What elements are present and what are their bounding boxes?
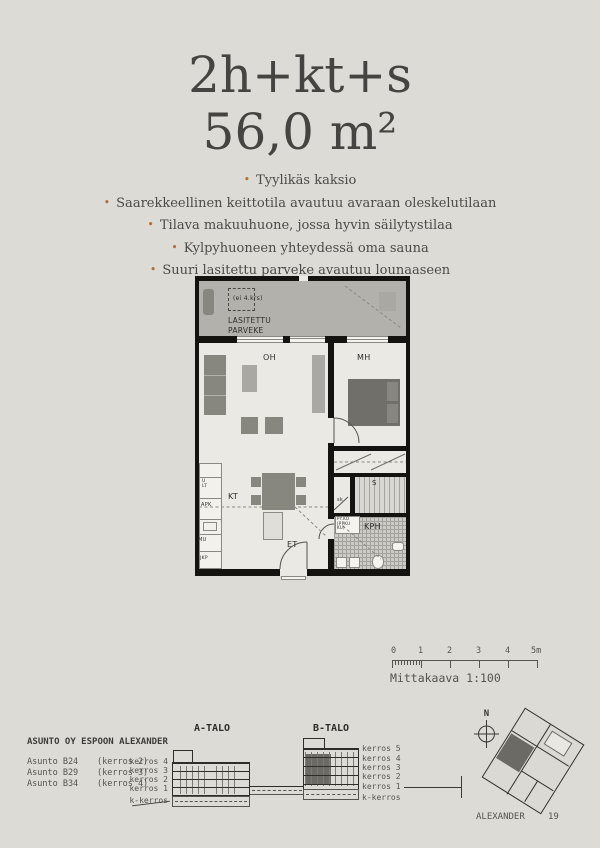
floor-label: kerros 4: [362, 754, 401, 763]
floor-line: [173, 787, 249, 788]
room-label-entry: ET: [287, 540, 298, 549]
room-label-sauna: S: [372, 479, 377, 487]
floor-label: kerros 3: [100, 766, 168, 775]
appliance-label-microwave: MU: [198, 537, 207, 543]
apartment-area-title: 56,0 m²: [0, 107, 600, 157]
floor-plan: (ei 4.krs) LASITETTU PARVEKE OH MH KT ET…: [195, 276, 410, 581]
building-a-elevation: [172, 750, 252, 808]
bullet-icon: •: [147, 218, 154, 231]
partition-line: [524, 780, 538, 802]
scale-tick: [537, 660, 538, 668]
floor-label: kerros 5: [362, 744, 401, 753]
appliance-label-stove: ULT: [202, 479, 207, 489]
appliance-label-dishwasher: APK: [201, 502, 212, 508]
ground-dash: [252, 790, 302, 791]
floor-line: [304, 766, 358, 767]
balcony-label: LASITETTU: [228, 316, 271, 325]
room-label-bathroom: KPH: [364, 522, 381, 531]
scale-tick: [421, 660, 422, 668]
scale-subdivisions: [392, 661, 421, 665]
scale-tick: [479, 660, 480, 668]
apartment-name: Asunto B29: [27, 768, 97, 779]
bullet-icon: •: [244, 173, 251, 186]
bullet-icon: •: [104, 196, 111, 209]
floor-line: [173, 779, 249, 780]
appliance-label-washer: PY.KO(PPKUKU): [337, 517, 350, 531]
scale-tick-label: 2: [447, 646, 452, 656]
siteplan-project-name: ALEXANDER: [476, 812, 525, 822]
scale-tick: [450, 660, 451, 668]
site-plan: [486, 714, 586, 810]
floor-line: [173, 771, 249, 772]
room-label-kitchen: KT: [228, 492, 238, 501]
building-a-label: A-TALO: [172, 723, 252, 734]
floor-label: k-kerros: [100, 796, 168, 805]
floor-line: [304, 784, 358, 785]
floor-label: kerros 4: [100, 757, 168, 766]
feature-text: Tyylikäs kaksio: [256, 173, 356, 188]
housing-company-name: ASUNTO OY ESPOON ALEXANDER: [27, 737, 168, 747]
bullet-icon: •: [171, 241, 178, 254]
basement-level: [172, 796, 250, 807]
kerros1-leader-line: [404, 787, 462, 788]
feature-item: •Tyylikäs kaksio: [0, 169, 600, 192]
stove-line2: LT: [202, 484, 207, 489]
appliance-label-fridge: JKP: [200, 556, 208, 561]
page-number: 19: [548, 812, 559, 822]
feature-text: Tilava makuuhuone, jossa hyvin säilytyst…: [160, 218, 453, 233]
floor-label: kerros 1: [100, 784, 168, 793]
room-label-living: OH: [263, 353, 276, 362]
feature-item: •Tilava makuuhuone, jossa hyvin säilytys…: [0, 214, 600, 237]
basement-dash: [306, 794, 356, 795]
balcony-label: PARVEKE: [228, 326, 264, 335]
basement-level: [303, 789, 359, 800]
floor-label: k-kerros: [362, 793, 401, 802]
basement-dash: [175, 801, 247, 802]
floor-label: kerros 2: [362, 772, 401, 781]
feature-list: •Tyylikäs kaksio •Saarekkeellinen keitto…: [0, 169, 600, 282]
section-marker-line: [461, 776, 462, 798]
scale-tick-label: 5m: [531, 646, 541, 656]
floor-label: kerros 3: [362, 763, 401, 772]
apartment-type-title: 2h+kt+s: [0, 50, 600, 100]
brochure-page: 2h+kt+s 56,0 m² •Tyylikäs kaksio •Saarek…: [0, 0, 600, 848]
floor-label: kerros 1: [362, 782, 401, 791]
apartment-name: Asunto B34: [27, 779, 97, 790]
room-label-bedroom: MH: [357, 353, 371, 362]
room-label-closet: sk: [337, 497, 343, 503]
building-b-elevation: [303, 738, 359, 800]
balcony-note: (ei 4.krs): [233, 295, 263, 302]
floor-line: [304, 757, 358, 758]
feature-text: Kylpyhuoneen yhteydessä oma sauna: [184, 241, 429, 256]
building-b-label: B-TALO: [303, 723, 359, 734]
highlighted-apartment: [496, 733, 534, 772]
scale-caption: Mittakaava 1:100: [390, 671, 501, 685]
building-footprint: [482, 708, 585, 815]
apartment-name: Asunto B24: [27, 757, 97, 768]
bullet-icon: •: [150, 263, 157, 276]
feature-item: •Saarekkeellinen keittotila avautuu avar…: [0, 192, 600, 215]
floor-line: [304, 775, 358, 776]
scale-tick-label: 1: [418, 646, 423, 656]
washer-line3: KU): [337, 525, 345, 530]
scale-bar: 0 1 2 3 4 5m: [391, 646, 546, 670]
floor-label: kerros 2: [100, 775, 168, 784]
ground-strip: [250, 786, 304, 795]
scale-tick-label: 4: [505, 646, 510, 656]
scale-tick-label: 3: [476, 646, 481, 656]
scale-tick: [508, 660, 509, 668]
feature-text: Saarekkeellinen keittotila avautuu avara…: [116, 196, 496, 211]
scale-tick-label: 0: [391, 646, 396, 656]
feature-item: •Kylpyhuoneen yhteydessä oma sauna: [0, 237, 600, 260]
